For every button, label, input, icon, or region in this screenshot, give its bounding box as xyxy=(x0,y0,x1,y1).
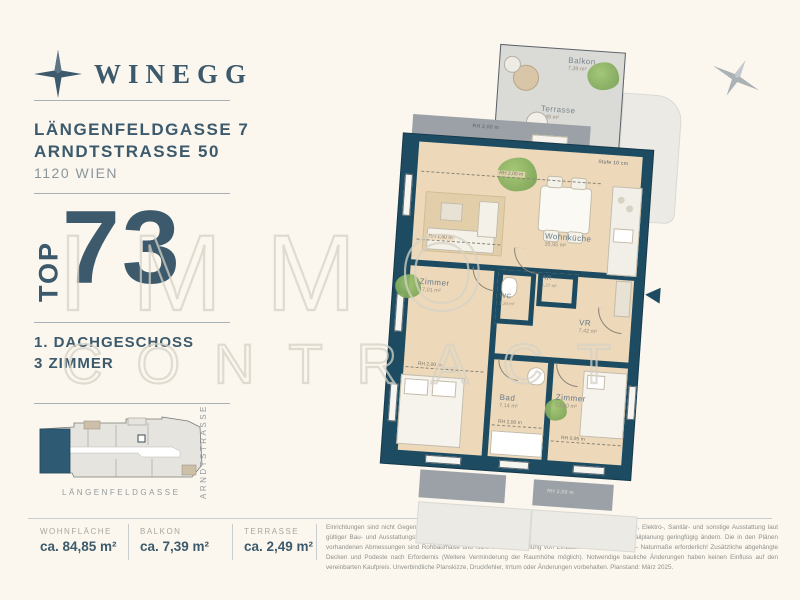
floor-plan: Balkon 7,39 m² Terrasse 2,49 m² RH 2,00 … xyxy=(355,16,689,541)
label-ar: AR 1,27 m² xyxy=(541,274,557,288)
window xyxy=(388,383,399,421)
winegg-star-icon xyxy=(34,50,82,98)
chair xyxy=(570,177,587,190)
unit-number: 73 xyxy=(62,196,182,300)
chair xyxy=(546,176,563,189)
kitchen-sink xyxy=(613,228,634,243)
brand-name: WINEGG xyxy=(94,59,253,90)
site-plan-unit-highlight xyxy=(40,429,70,473)
metric-terrasse: TERRASSE ca. 2,49 m² xyxy=(244,527,313,554)
window xyxy=(573,465,605,475)
entrance-arrow-icon xyxy=(645,287,661,304)
roof-surface-bottom-left xyxy=(415,501,532,551)
brand-logo: WINEGG xyxy=(34,50,253,98)
roof-strip-bottom-left xyxy=(418,469,506,503)
label-wohnkueche: Wohnküche 35,95 m² xyxy=(544,232,592,251)
address-city: 1120 WIEN xyxy=(34,165,118,181)
unit-floor: 1. DACHGESCHOSS xyxy=(34,334,194,351)
site-plan-map xyxy=(30,415,210,487)
unit-top-label: TOP xyxy=(34,229,65,315)
window xyxy=(394,293,405,331)
label-zimmer2: Zimmer 13,40 m² xyxy=(555,393,586,411)
roof-strip-bottom-right: RH 2,00 m xyxy=(532,479,614,511)
annotation-rh: RH 2,00 m xyxy=(472,123,499,131)
window xyxy=(402,174,413,216)
bathtub xyxy=(490,430,544,458)
divider xyxy=(34,322,230,323)
address-line-1: LÄNGENFELDGASSE 7 xyxy=(34,120,249,140)
plant-icon xyxy=(586,61,620,91)
window xyxy=(626,386,636,420)
metric-separator xyxy=(316,524,317,560)
dining-table xyxy=(537,185,592,235)
sofa-side xyxy=(477,201,499,238)
divider xyxy=(34,100,230,101)
pillow xyxy=(432,380,457,398)
metric-wohnflaeche: WOHNFLÄCHE ca. 84,85 m² xyxy=(40,527,117,554)
roof-surface-bottom-right xyxy=(529,509,637,552)
street-label-arndtstrasse: ARNDTSTRASSE xyxy=(199,421,208,499)
annotation-rh: RH 2,00 m xyxy=(547,488,574,496)
site-plan xyxy=(30,415,210,492)
label-zimmer1: Zimmer 17,01 m² xyxy=(419,277,450,295)
sink xyxy=(527,367,546,386)
apartment-body: RH 2,00 m RH 1,50 m RH 2,00 m RH 2,00 m … xyxy=(381,133,653,480)
north-arrow-icon xyxy=(706,56,766,100)
address-line-2: ARNDTSTRASSE 50 xyxy=(34,142,220,162)
pillow xyxy=(404,378,429,396)
street-label-laengenfeldgasse: LÄNGENFELDGASSE xyxy=(62,488,180,497)
window xyxy=(499,460,529,470)
window xyxy=(425,455,461,465)
metric-separator xyxy=(232,524,233,560)
label-wc: WC 1,34 m² xyxy=(499,292,515,306)
unit-rooms: 3 ZIMMER xyxy=(34,355,114,372)
metric-balkon: BALKON ca. 7,39 m² xyxy=(140,527,209,554)
label-vr: VR 7,42 m² xyxy=(578,318,598,335)
pillow xyxy=(586,375,605,390)
metric-separator xyxy=(128,524,129,560)
label-bad: Bad 7,14 m² xyxy=(499,393,519,410)
coffee-table xyxy=(440,202,463,221)
